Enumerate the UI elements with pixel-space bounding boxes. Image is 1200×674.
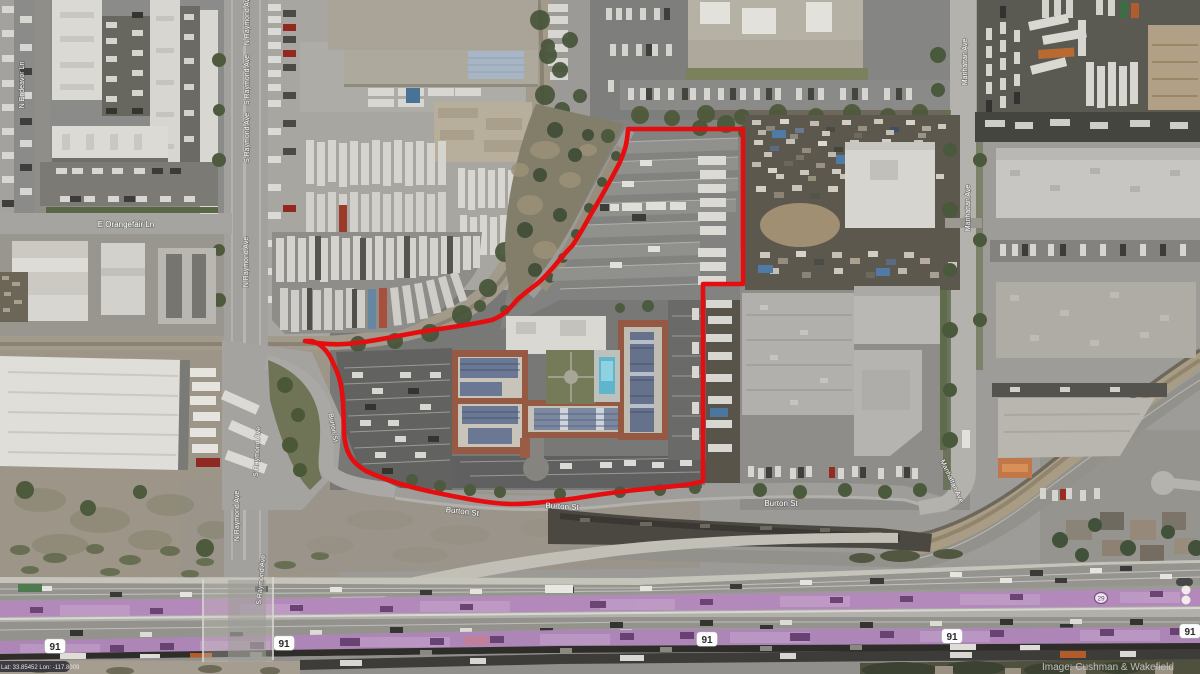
- svg-text:Burton St: Burton St: [764, 499, 798, 508]
- svg-text:N Endeavor Ln: N Endeavor Ln: [19, 62, 26, 109]
- svg-text:91: 91: [701, 635, 713, 646]
- svg-text:91: 91: [1184, 627, 1196, 638]
- svg-text:Manhattan Ave: Manhattan Ave: [965, 185, 972, 232]
- svg-text:N Raymond Ave: N Raymond Ave: [234, 491, 241, 542]
- svg-text:29: 29: [1097, 596, 1105, 603]
- svg-text:91: 91: [946, 632, 958, 643]
- svg-text:91: 91: [278, 639, 290, 650]
- svg-text:N Raymond Ave: N Raymond Ave: [243, 237, 250, 288]
- svg-text:Manhattan Ave: Manhattan Ave: [962, 39, 969, 86]
- svg-text:91: 91: [49, 642, 61, 653]
- svg-text:Burton St: Burton St: [545, 501, 580, 512]
- svg-text:Image: Cushman & Wakefield: Image: Cushman & Wakefield: [1042, 662, 1174, 673]
- svg-text:E Orangefair Ln: E Orangefair Ln: [98, 220, 154, 229]
- svg-text:N Raymond Ave: N Raymond Ave: [244, 0, 251, 45]
- svg-text:S Raymond Ave: S Raymond Ave: [244, 113, 251, 163]
- svg-text:S Raymond Ave: S Raymond Ave: [244, 55, 251, 105]
- svg-text:Lat: 33.85452 Lon: -117.8009: Lat: 33.85452 Lon: -117.8009: [1, 665, 80, 671]
